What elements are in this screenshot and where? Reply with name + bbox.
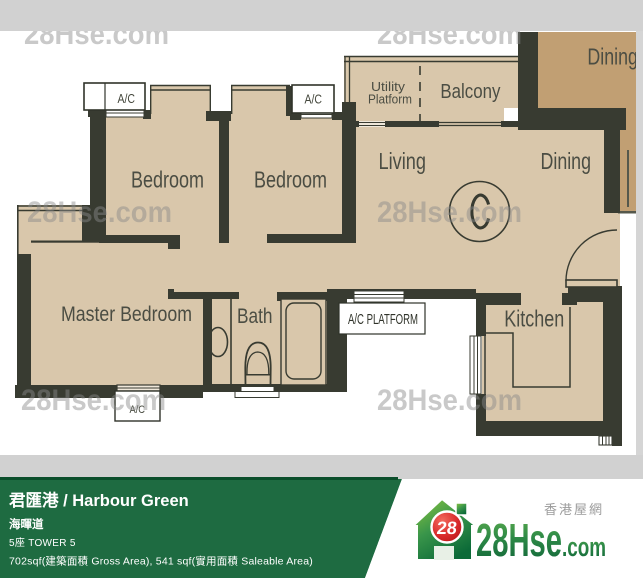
svg-text:A/C: A/C [305, 93, 323, 107]
svg-text:Bedroom: Bedroom [131, 167, 204, 193]
svg-text:A/C: A/C [118, 92, 136, 106]
svg-text:海暉道: 海暉道 [9, 517, 44, 531]
svg-text:A/C PLATFORM: A/C PLATFORM [348, 312, 418, 328]
svg-text:28Hse.com: 28Hse.com [377, 196, 522, 229]
svg-text:Living: Living [379, 148, 427, 174]
svg-text:28Hse.com: 28Hse.com [377, 384, 522, 417]
svg-text:.com: .com [562, 532, 606, 562]
svg-text:28: 28 [436, 518, 458, 538]
svg-text:Platform: Platform [368, 93, 412, 107]
svg-text:君匯港 / Harbour Green: 君匯港 / Harbour Green [9, 490, 189, 510]
svg-text:香港屋網: 香港屋網 [544, 502, 604, 517]
svg-text:702sqf(建築面積 Gross Area), 541 s: 702sqf(建築面積 Gross Area), 541 sqf(實用面積 Sa… [9, 555, 313, 568]
svg-text:Kitchen: Kitchen [504, 306, 564, 332]
svg-text:Balcony: Balcony [440, 81, 500, 103]
svg-text:Dining: Dining [541, 148, 592, 174]
svg-text:5座 TOWER 5: 5座 TOWER 5 [9, 536, 76, 549]
svg-text:28Hse: 28Hse [476, 514, 562, 566]
svg-text:28Hse.com: 28Hse.com [27, 196, 172, 229]
svg-text:Dining: Dining [587, 44, 638, 70]
svg-text:Master Bedroom: Master Bedroom [61, 303, 192, 326]
svg-text:28Hse.com: 28Hse.com [21, 384, 166, 417]
svg-text:Bath: Bath [237, 305, 273, 328]
svg-text:Bedroom: Bedroom [254, 167, 327, 193]
